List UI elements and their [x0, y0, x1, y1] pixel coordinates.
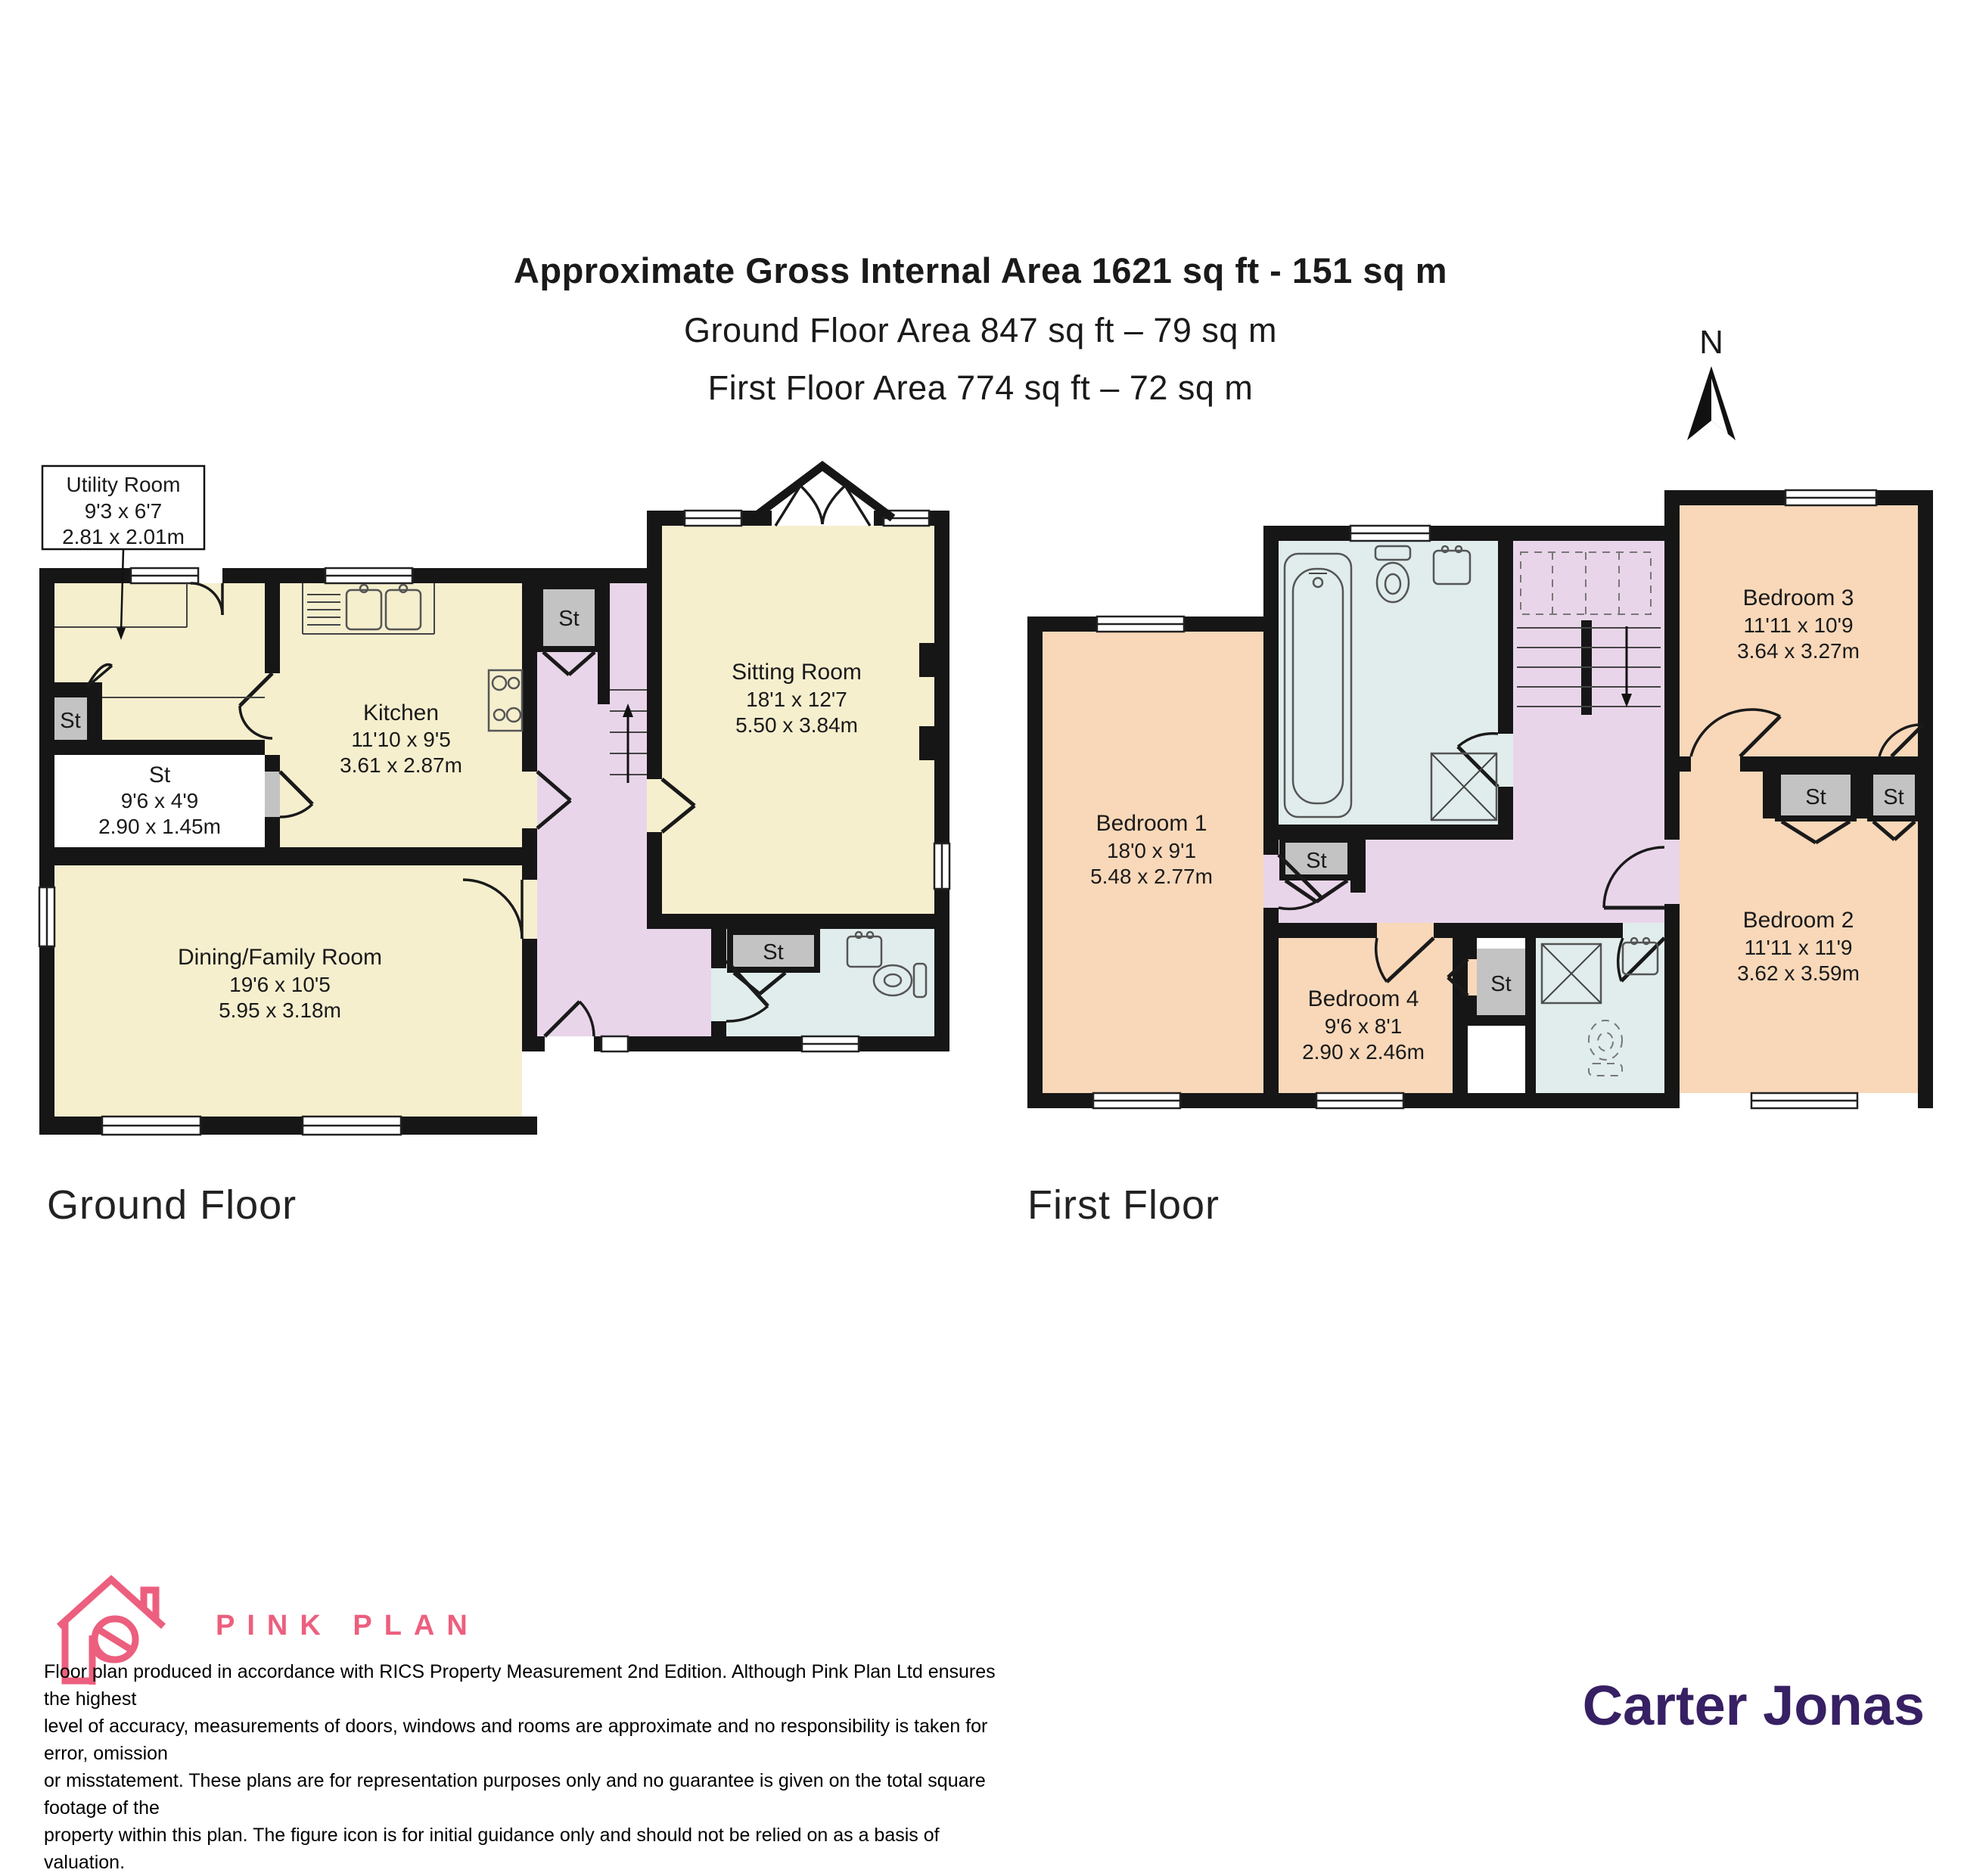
sitting-dims-ft: 18'1 x 12'7 [746, 688, 847, 711]
bedroom3-dims-m: 3.64 x 3.27m [1737, 639, 1860, 663]
bedroom1-dims-ft: 18'0 x 9'1 [1107, 839, 1196, 862]
disclaimer-line: property within this plan. The figure ic… [44, 1822, 997, 1876]
bedroom1-name: Bedroom 1 [1096, 811, 1207, 836]
north-label: N [1681, 324, 1742, 362]
st-hall-label: St [558, 607, 579, 631]
dining-dims-m: 5.95 x 3.18m [219, 999, 341, 1022]
st-bed3-right-label: St [1883, 785, 1904, 809]
storage-dims-m: 2.90 x 1.45m [98, 815, 221, 838]
st-small-label: St [60, 709, 80, 733]
first-floor-plan: Bedroom 1 18'0 x 9'1 5.48 x 2.77m Bedroo… [1021, 484, 1944, 1135]
disclaimer-line: level of accuracy, measurements of doors… [44, 1713, 997, 1767]
kitchen-name: Kitchen [363, 700, 439, 725]
sitting-dims-m: 5.50 x 3.84m [735, 713, 858, 737]
dining-name: Dining/Family Room [178, 945, 382, 970]
utility-dims-ft: 9'3 x 6'7 [85, 499, 163, 523]
storage-name: St [149, 763, 171, 787]
disclaimer-line: Floor plan produced in accordance with R… [44, 1658, 997, 1713]
bedroom3-name: Bedroom 3 [1743, 585, 1854, 610]
kitchen-dims-m: 3.61 x 2.87m [340, 753, 462, 777]
first-floor-caption: First Floor [1027, 1182, 1220, 1228]
ground-floor-caption: Ground Floor [47, 1182, 297, 1228]
bedroom3-dims-ft: 11'11 x 10'9 [1743, 613, 1853, 637]
st-wc-label: St [763, 940, 783, 964]
storage-dims-ft: 9'6 x 4'9 [121, 789, 199, 812]
bedroom4-dims-ft: 9'6 x 8'1 [1325, 1014, 1403, 1038]
dining-dims-ft: 19'6 x 10'5 [229, 973, 331, 996]
st-bed3-left-label: St [1805, 785, 1826, 809]
utility-name: Utility Room [67, 473, 181, 496]
page-title: Approximate Gross Internal Area 1621 sq … [0, 250, 1961, 291]
bedroom4-dims-m: 2.90 x 2.46m [1302, 1040, 1425, 1064]
kitchen-dims-ft: 11'10 x 9'5 [351, 728, 451, 751]
first-floor-area-subtitle: First Floor Area 774 sq ft – 72 sq m [0, 368, 1961, 408]
pink-plan-wordmark: PINK PLAN [216, 1610, 480, 1642]
disclaimer-text: Floor plan produced in accordance with R… [44, 1658, 997, 1876]
north-indicator: N [1681, 324, 1742, 460]
bedroom1-dims-m: 5.48 x 2.77m [1090, 865, 1213, 888]
disclaimer-line: or misstatement. These plans are for rep… [44, 1767, 997, 1822]
ground-floor-area-subtitle: Ground Floor Area 847 sq ft – 79 sq m [0, 311, 1961, 350]
bedroom4-name: Bedroom 4 [1308, 986, 1419, 1011]
st-bed4-label: St [1490, 972, 1511, 996]
bedroom2-name: Bedroom 2 [1743, 908, 1854, 933]
st-bathroom-label: St [1306, 849, 1326, 873]
header: Approximate Gross Internal Area 1621 sq … [0, 250, 1961, 408]
utility-dims-m: 2.81 x 2.01m [62, 525, 185, 548]
ground-floor-plan: Utility Room 9'3 x 6'7 2.81 x 2.01m St S… [30, 446, 961, 1157]
sitting-name: Sitting Room [732, 660, 862, 685]
bedroom2-dims-m: 3.62 x 3.59m [1737, 961, 1860, 985]
bedroom2-dims-ft: 11'11 x 11'9 [1744, 936, 1852, 959]
agency-logo: Carter Jonas [1583, 1673, 1925, 1738]
room-bedroom1 [1043, 632, 1263, 1093]
north-arrow-icon [1681, 362, 1742, 452]
